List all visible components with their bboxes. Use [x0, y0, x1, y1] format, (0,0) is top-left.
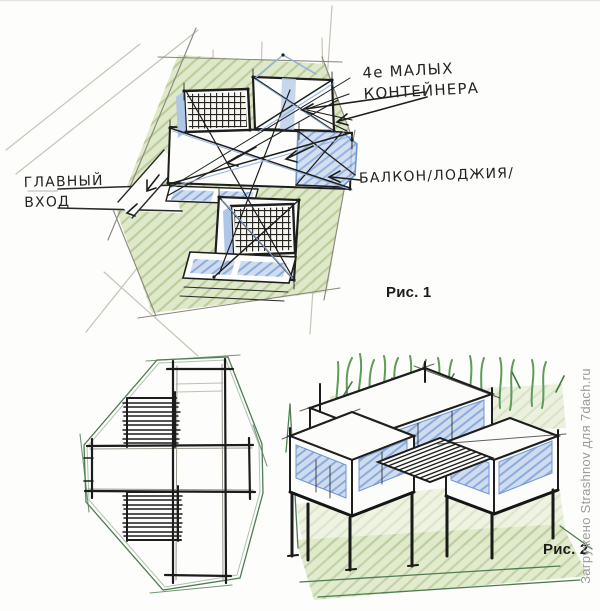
containers-annotation: 4е МАЛЫХ КОНТЕЙНЕРА [362, 57, 480, 105]
plan-hatch-square-top [123, 392, 180, 447]
scanned-sketch-page: 4е МАЛЫХ КОНТЕЙНЕРА ГЛАВНЫЙ ВХОД БАЛКОН/… [0, 0, 600, 611]
plan-pencil-doubles [88, 364, 253, 580]
grid-roof-upper [176, 89, 250, 138]
entrance-annotation: ГЛАВНЫЙ ВХОД [24, 172, 105, 213]
figure2-iso-sketch [282, 354, 592, 600]
figure2-plan-sketch [80, 355, 267, 593]
plan-cross [85, 359, 255, 583]
watermark-text: Загружено Strashnov для 7dach.ru [578, 341, 596, 611]
figure1-caption: Рис. 1 [386, 284, 431, 301]
sketch-drawing [0, 0, 600, 611]
